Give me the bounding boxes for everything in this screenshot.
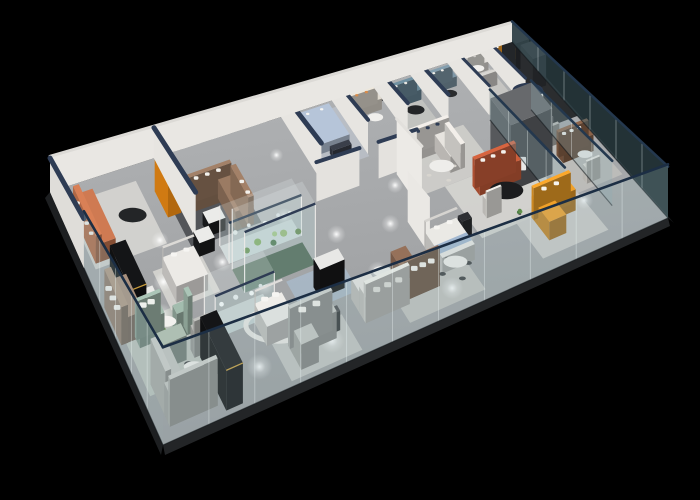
pillow [320, 108, 323, 110]
pillow [183, 248, 189, 252]
pillow [272, 292, 279, 297]
pillow [434, 226, 440, 230]
pillow [261, 297, 268, 302]
pillow [447, 220, 453, 224]
showroom-3d-render [0, 0, 700, 500]
ceiling-spotlight-glow [270, 148, 283, 161]
pillow [171, 252, 177, 256]
ceiling-spotlight-glow [327, 225, 345, 243]
floorplan-canvas [0, 0, 700, 500]
coffee-table-a1 [119, 208, 147, 223]
ceiling-spotlight-glow [381, 215, 399, 233]
pillow [306, 113, 309, 115]
round-table-teal [407, 105, 425, 114]
